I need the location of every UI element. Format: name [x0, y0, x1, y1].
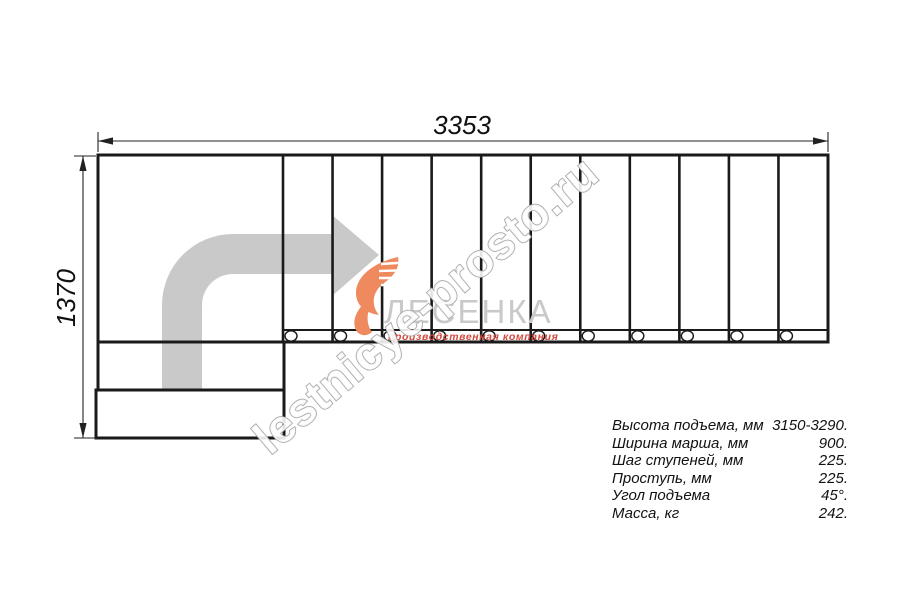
- baluster-circle: [681, 331, 693, 341]
- spec-label: Масса, кг: [612, 505, 679, 522]
- spec-value: 900.: [819, 435, 848, 452]
- site-watermark: lestnicye-prosto.ru: [243, 145, 608, 463]
- dim-width-label: 1370: [51, 269, 81, 327]
- spec-value: 225.: [819, 470, 848, 487]
- spec-label: Высота подъема, мм: [612, 417, 764, 434]
- baluster-circle: [285, 331, 297, 341]
- spec-label: Ширина марша, мм: [612, 435, 748, 452]
- specifications-table: Высота подъема, мм 3150-3290. Ширина мар…: [612, 417, 848, 523]
- dim-length-label: 3353: [433, 110, 491, 140]
- spec-label: Угол подъема: [612, 487, 710, 504]
- baluster-circle: [632, 331, 644, 341]
- spec-row-mass: Масса, кг 242.: [612, 505, 848, 523]
- spec-label: Проступь, мм: [612, 470, 712, 487]
- spec-value: 3150-3290.: [772, 417, 848, 434]
- spec-label: Шаг ступеней, мм: [612, 452, 743, 469]
- spec-row-step-pitch: Шаг ступеней, мм 225.: [612, 452, 848, 470]
- spec-value: 45°.: [821, 487, 848, 504]
- spec-row-flight-width: Ширина марша, мм 900.: [612, 435, 848, 453]
- baluster-circle: [780, 331, 792, 341]
- stair-drawing-canvas: 3353 1370 ЛЕСЕНКА производственная компа…: [0, 0, 900, 600]
- baluster-circle: [731, 331, 743, 341]
- spec-row-tread-depth: Проступь, мм 225.: [612, 470, 848, 488]
- baluster-circle: [582, 331, 594, 341]
- spec-value: 242.: [819, 505, 848, 522]
- spec-value: 225.: [819, 452, 848, 469]
- spec-row-angle: Угол подъема 45°.: [612, 487, 848, 505]
- spec-row-height: Высота подъема, мм 3150-3290.: [612, 417, 848, 435]
